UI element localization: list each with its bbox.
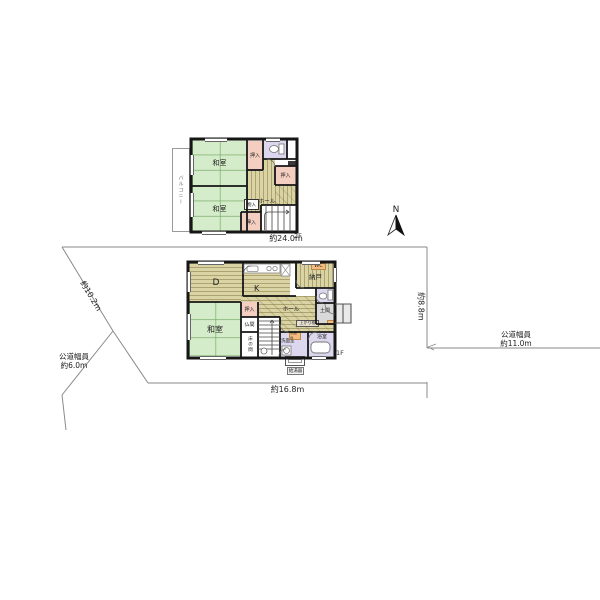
room-washitsu-2f-bottom: 和室 xyxy=(192,186,247,232)
closet-1f-label: 押入 xyxy=(244,306,254,313)
room-dining-1f: D xyxy=(189,263,243,302)
entrance-porch xyxy=(335,304,351,323)
room-washitsu-2f-top: 和室 xyxy=(192,140,247,186)
closet-2f-right-label: 押入 xyxy=(280,172,290,179)
hall-2f-label: ホール xyxy=(254,198,280,206)
floor2-plan: バルコニー 和室 和室 押入 押入 物入 押入 ホール xyxy=(170,131,304,241)
window-1f xyxy=(198,261,224,265)
balcony-2f: バルコニー xyxy=(172,148,190,232)
shoe-cabinet-1f xyxy=(327,320,335,325)
agari-kamachi-label: 上がり框 xyxy=(300,320,316,326)
nando-label: 納戸 xyxy=(309,271,322,281)
washitsu-1f-label: 和室 xyxy=(207,324,223,335)
butsuma-label: 仏間 xyxy=(244,321,254,328)
room-kitchen-1f xyxy=(243,263,290,296)
floorplan-page: 約24.0m 約16.8m 約8.8m 約10.2m 公道幅員約6.0m 公道幅… xyxy=(0,0,600,600)
dining-label: D xyxy=(213,278,220,288)
room-washitsu-1f: 和室 xyxy=(189,302,241,356)
washitsu-2f-top-label: 和室 xyxy=(213,158,227,168)
closet-2f-bottom: 押入 xyxy=(241,212,261,232)
washstand-label: 洗面台 xyxy=(290,331,300,341)
floor2-label: 2F xyxy=(294,233,302,240)
window-1f xyxy=(333,268,337,282)
window-1f xyxy=(187,272,191,292)
window-2f xyxy=(205,138,227,142)
tokonoma-label: 床の間 xyxy=(247,336,253,353)
stairs-1f xyxy=(258,317,280,356)
dim-bottom-label: 約16.8m xyxy=(245,386,330,395)
window-1f xyxy=(302,261,320,265)
balcony-label: バルコニー xyxy=(178,175,185,205)
window-2f xyxy=(190,193,194,217)
tokonoma-1f: 床の間 xyxy=(241,332,258,356)
road-width-left-label: 公道幅員約6.0m xyxy=(42,352,106,370)
water-heater-label: 給湯器 xyxy=(289,368,303,374)
toilet-2f xyxy=(263,140,287,159)
window-1f xyxy=(200,356,226,360)
north-compass-icon: N xyxy=(383,200,409,240)
closet-2f-top: 押入 xyxy=(247,141,263,170)
hall-1f-label: ホール xyxy=(276,306,306,314)
stairs-2f xyxy=(261,205,297,232)
window-2f xyxy=(266,138,280,142)
dim-right-label: 約8.8m xyxy=(416,286,425,326)
window-1f xyxy=(312,356,326,360)
bathroom-label: 浴室 xyxy=(317,335,327,341)
window-2f xyxy=(190,155,194,175)
road-width-right-label: 公道幅員約11.0m xyxy=(478,330,554,348)
toilet-1f xyxy=(316,288,335,303)
svg-text:N: N xyxy=(393,205,400,215)
closet-1f: 押入 xyxy=(241,302,258,317)
washitsu-2f-bottom-label: 和室 xyxy=(213,204,227,214)
window-1f xyxy=(187,314,191,340)
closet-2f-bottom-label: 押入 xyxy=(246,219,256,226)
floor1-plan: D K 納戸 WC 和室 押入 仏間 床の間 ホール 洗面室 xyxy=(184,256,359,381)
closet-2f-right: 押入 xyxy=(275,166,296,185)
water-heater-box: 給湯器 xyxy=(287,367,304,375)
butsuma-1f: 仏間 xyxy=(241,317,258,332)
backdoor-step-line xyxy=(288,359,302,363)
kitchen-label: K xyxy=(254,285,259,294)
floor1-label: 1F xyxy=(336,350,344,357)
agari-kamachi-badge: 上がり框 xyxy=(296,320,319,327)
doma-label: 土間 xyxy=(320,309,330,315)
closet-2f-top-label: 押入 xyxy=(250,152,260,159)
window-2f xyxy=(202,231,226,235)
washstand-1f: 洗面台 xyxy=(289,332,301,340)
